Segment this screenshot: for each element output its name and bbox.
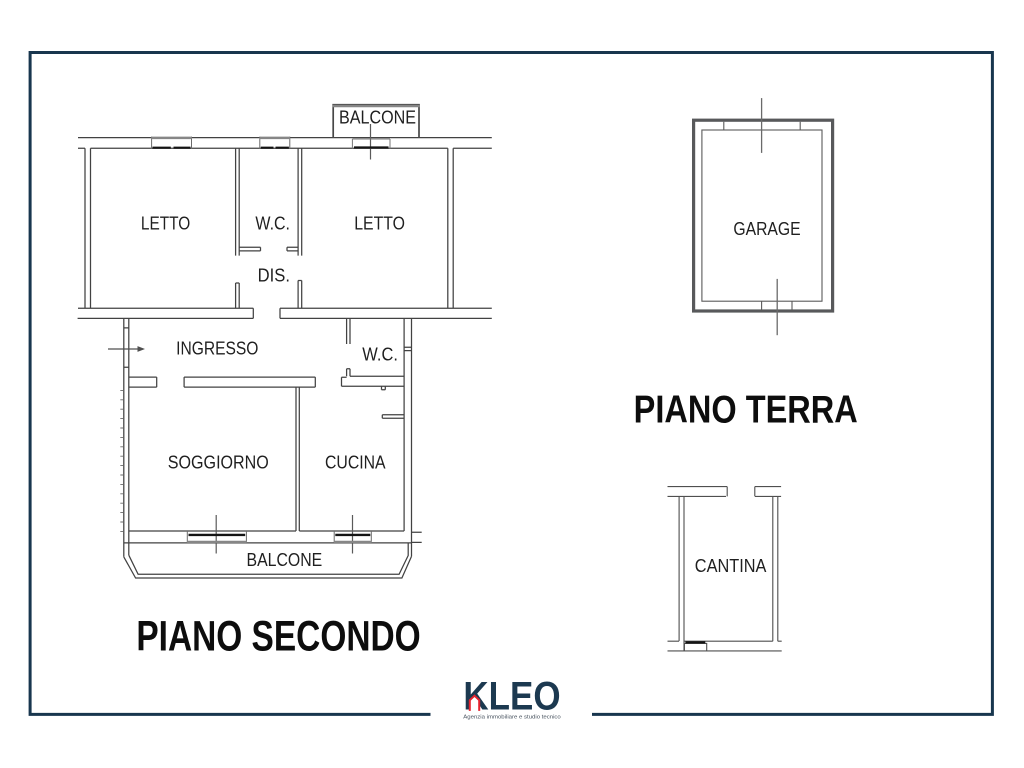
svg-text:PIANO TERRA: PIANO TERRA bbox=[634, 389, 858, 432]
svg-text:DIS.: DIS. bbox=[258, 265, 290, 285]
svg-text:Agenzia immobiliare e studio t: Agenzia immobiliare e studio tecnico bbox=[463, 715, 561, 721]
svg-text:CANTINA: CANTINA bbox=[695, 556, 767, 576]
svg-text:W.C.: W.C. bbox=[255, 213, 290, 233]
svg-text:LETTO: LETTO bbox=[354, 213, 405, 233]
svg-text:SOGGIORNO: SOGGIORNO bbox=[168, 452, 269, 472]
svg-text:PIANO SECONDO: PIANO SECONDO bbox=[136, 613, 420, 661]
svg-text:INGRESSO: INGRESSO bbox=[176, 338, 258, 358]
svg-text:LETTO: LETTO bbox=[141, 213, 190, 233]
svg-text:GARAGE: GARAGE bbox=[733, 219, 800, 239]
svg-text:W.C.: W.C. bbox=[362, 345, 398, 365]
svg-text:BALCONE: BALCONE bbox=[339, 108, 416, 128]
svg-text:CUCINA: CUCINA bbox=[325, 452, 386, 472]
svg-text:KLEO: KLEO bbox=[463, 675, 560, 719]
svg-text:BALCONE: BALCONE bbox=[247, 550, 323, 570]
